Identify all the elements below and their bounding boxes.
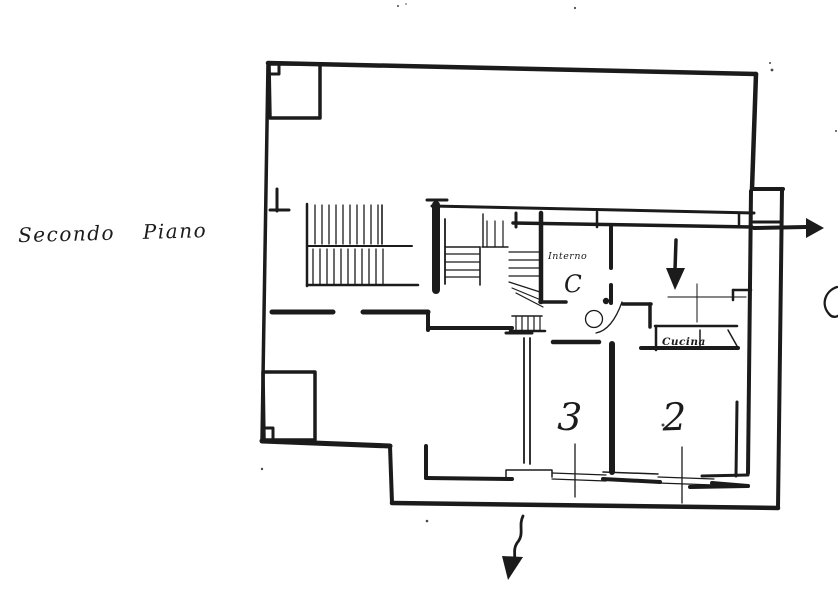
room-3-number: 3 — [556, 394, 582, 439]
unit-down-arrow-icon — [666, 240, 685, 290]
bottom-windowed-wall — [426, 444, 748, 503]
vestibule-letter: C — [563, 270, 583, 299]
secondary-staircase — [445, 213, 545, 331]
balcony-bottom-left — [262, 372, 315, 440]
vestibule-label: Interno — [547, 251, 587, 262]
balcony-top-left — [268, 63, 320, 118]
exit-down-arrow-icon — [502, 516, 523, 580]
edge-letter-fragment — [825, 287, 838, 317]
left-wall-tick — [270, 189, 289, 211]
scanned-floorplan-page: Secondo Piano Interno C Cucina 3 2 — [0, 0, 838, 591]
floorplan-canvas: Secondo Piano Interno C Cucina 3 2 — [0, 0, 838, 591]
corridor-walls — [432, 206, 754, 227]
room-2-number: 2 — [660, 395, 687, 440]
main-staircase — [307, 200, 447, 290]
floor-title: Secondo Piano — [18, 218, 208, 247]
kitchen-label: Cucina — [662, 336, 706, 348]
